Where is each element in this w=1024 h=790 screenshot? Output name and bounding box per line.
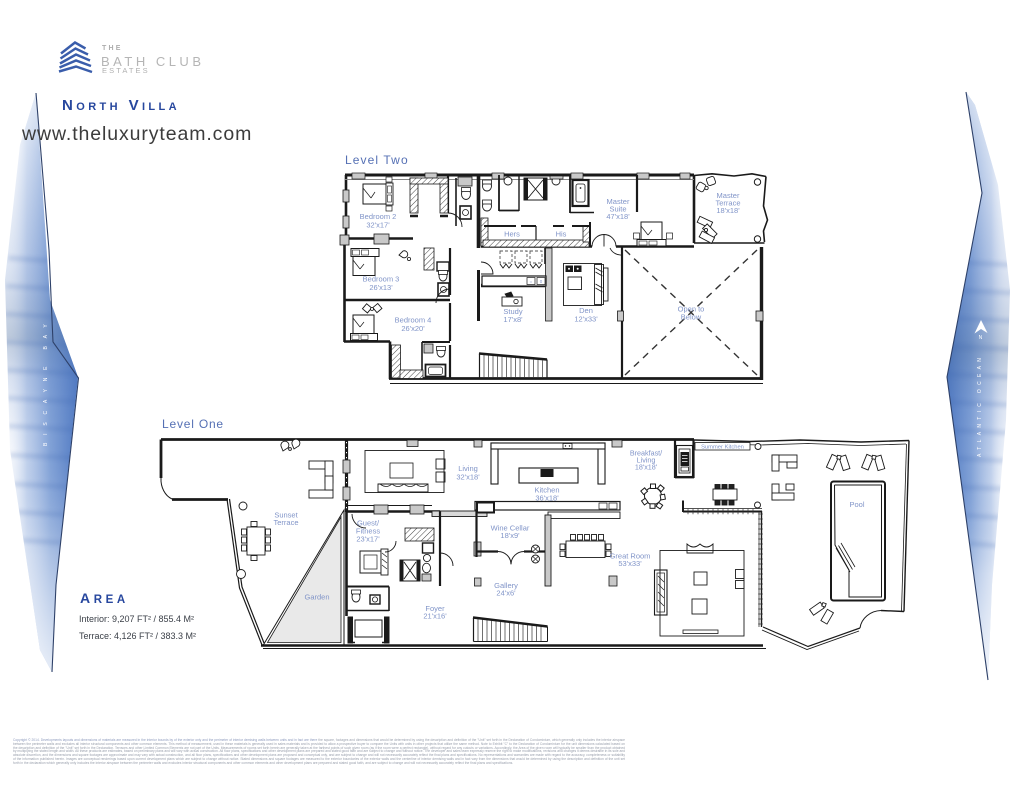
svg-text:Hers: Hers xyxy=(504,230,520,239)
svg-text:Below: Below xyxy=(681,313,702,322)
svg-text:17'x8': 17'x8' xyxy=(503,315,523,324)
svg-text:21'x16': 21'x16' xyxy=(423,612,447,621)
svg-text:18'x9': 18'x9' xyxy=(500,531,520,540)
svg-text:Pool: Pool xyxy=(849,500,864,509)
svg-text:24'x6': 24'x6' xyxy=(496,589,516,598)
svg-text:36'x18': 36'x18' xyxy=(535,494,559,503)
svg-text:32'x17': 32'x17' xyxy=(366,221,390,230)
svg-text:Summer Kitchen: Summer Kitchen xyxy=(701,445,744,451)
svg-text:BISCAYNE BAY: BISCAYNE BAY xyxy=(43,316,49,446)
svg-text:N: N xyxy=(979,335,983,341)
svg-text:Garden: Garden xyxy=(304,593,329,602)
svg-text:18'x18': 18'x18' xyxy=(716,206,740,215)
svg-text:Terrace: Terrace xyxy=(273,518,298,527)
svg-text:47'x18': 47'x18' xyxy=(606,212,630,221)
svg-text:26'x13': 26'x13' xyxy=(369,283,393,292)
svg-text:His: His xyxy=(556,230,567,239)
svg-text:53'x33': 53'x33' xyxy=(618,559,642,568)
svg-text:32'x18': 32'x18' xyxy=(456,473,480,482)
svg-text:26'x20': 26'x20' xyxy=(401,324,425,333)
svg-text:12'x33': 12'x33' xyxy=(574,315,598,324)
svg-text:ATLANTIC OCEAN: ATLANTIC OCEAN xyxy=(977,354,983,457)
svg-text:=: = xyxy=(530,279,533,284)
svg-text:18'x18': 18'x18' xyxy=(635,463,658,472)
svg-text:23'x17': 23'x17' xyxy=(356,535,380,544)
